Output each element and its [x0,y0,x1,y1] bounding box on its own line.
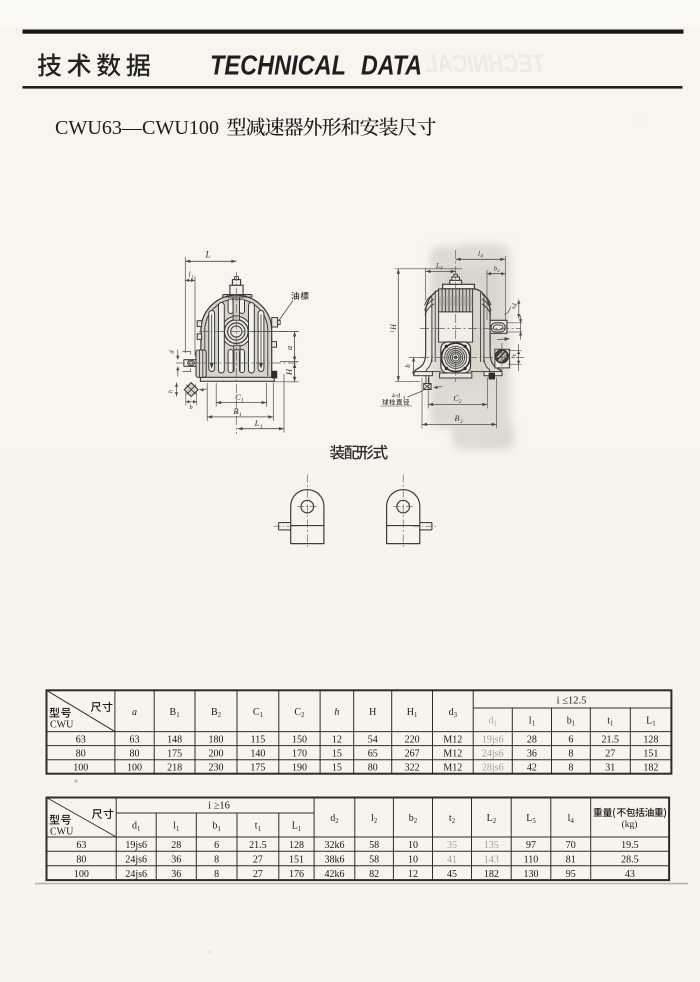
svg-text:100: 100 [73,763,88,774]
svg-text:143: 143 [484,855,499,866]
svg-text:24js6: 24js6 [125,869,147,880]
svg-text:6: 6 [568,735,573,746]
svg-text:81: 81 [566,855,576,866]
svg-text:140: 140 [250,749,265,760]
svg-text:182: 182 [484,869,499,880]
svg-text:180: 180 [209,735,224,746]
svg-text:80: 80 [76,749,86,760]
svg-text:H: H [284,368,294,376]
svg-text:42: 42 [527,763,537,774]
svg-text:190: 190 [292,763,307,774]
svg-text:35: 35 [447,840,457,851]
svg-text:58: 58 [369,855,379,866]
svg-text:24js6: 24js6 [482,749,504,760]
svg-text:CWU: CWU [50,720,74,731]
svg-text:M12: M12 [443,763,462,774]
svg-text:4-d: 4-d [392,393,401,400]
svg-text:12: 12 [332,735,342,746]
svg-text:70: 70 [566,840,576,851]
svg-text:B: B [233,406,238,416]
svg-text:80: 80 [130,749,140,760]
svg-text:21.5: 21.5 [249,840,267,851]
svg-text:a: a [132,707,137,718]
svg-text:B: B [455,414,460,423]
svg-text:28.5: 28.5 [621,855,639,866]
svg-text:80: 80 [76,855,86,866]
svg-text:19js6: 19js6 [482,735,504,746]
svg-text:a: a [285,346,294,350]
svg-text:218: 218 [167,763,182,774]
svg-text:80: 80 [368,763,378,774]
svg-text:1: 1 [241,398,244,404]
svg-text:h: h [334,707,339,718]
svg-text:2: 2 [460,419,463,425]
svg-text:i ≥16: i ≥16 [208,801,230,812]
svg-text:170: 170 [292,749,307,760]
svg-text:135: 135 [484,840,499,851]
svg-text:TECHNICAL: TECHNICAL [425,50,545,78]
svg-text:24js6: 24js6 [125,855,147,866]
svg-text:h: h [168,390,175,393]
svg-text:10: 10 [408,840,418,851]
svg-text:1: 1 [239,412,242,418]
svg-text:L: L [254,418,260,428]
svg-text:43: 43 [625,869,635,880]
svg-text:65: 65 [368,749,378,760]
svg-text:21.5: 21.5 [602,735,620,746]
svg-text:8: 8 [214,855,219,866]
svg-text:42k6: 42k6 [324,869,344,880]
svg-text:15: 15 [332,749,342,760]
svg-text:h: h [404,364,412,368]
svg-text:12: 12 [408,869,418,880]
svg-text:2: 2 [459,399,462,405]
svg-text:6: 6 [214,840,219,851]
svg-text:1: 1 [260,424,263,430]
svg-text:148: 148 [167,735,182,746]
svg-text:DATA: DATA [361,50,422,81]
svg-text:8: 8 [568,763,573,774]
svg-text:38k6: 38k6 [324,855,344,866]
svg-text:CWU63—CWU100: CWU63—CWU100 [55,117,219,139]
svg-text:97: 97 [526,840,536,851]
svg-text:36: 36 [171,855,181,866]
svg-text:CWU: CWU [50,827,74,838]
svg-text:41: 41 [447,855,457,866]
svg-text:175: 175 [250,763,265,774]
svg-text:19js6: 19js6 [125,840,147,851]
svg-text:31: 31 [605,763,615,774]
svg-text:58: 58 [369,840,379,851]
svg-text:151: 151 [643,749,658,760]
svg-text:230: 230 [209,763,224,774]
svg-text:36: 36 [527,749,537,760]
svg-text:H: H [369,707,376,718]
svg-text:45: 45 [447,869,457,880]
svg-text:128: 128 [643,735,658,746]
svg-text:200: 200 [209,749,224,760]
svg-text:10: 10 [408,855,418,866]
svg-text:63: 63 [76,840,86,851]
svg-text:1: 1 [390,330,396,333]
svg-text:151: 151 [289,855,304,866]
svg-text:82: 82 [369,869,379,880]
svg-text:i ≤12.5: i ≤12.5 [557,696,587,707]
svg-text:150: 150 [292,735,307,746]
svg-text:32k6: 32k6 [324,840,344,851]
svg-text:28js6: 28js6 [482,763,504,774]
svg-text:63: 63 [76,735,86,746]
svg-text:63: 63 [130,735,140,746]
svg-text:176: 176 [289,869,304,880]
svg-text:27: 27 [253,855,263,866]
svg-text:110: 110 [524,855,539,866]
svg-text:54: 54 [368,735,378,746]
svg-text:100: 100 [127,763,142,774]
svg-text:M12: M12 [443,749,462,760]
svg-text:130: 130 [524,869,539,880]
svg-text:27: 27 [253,869,263,880]
svg-text:115: 115 [251,735,266,746]
svg-text:8: 8 [214,869,219,880]
svg-text:267: 267 [405,749,420,760]
svg-text:28: 28 [171,840,181,851]
svg-text:128: 128 [289,840,304,851]
svg-text:100: 100 [74,869,89,880]
svg-text:322: 322 [405,763,420,774]
svg-text:1: 1 [191,274,194,280]
svg-text:TECHNICAL: TECHNICAL [210,50,346,81]
svg-text:28: 28 [527,735,537,746]
svg-text:175: 175 [167,749,182,760]
svg-text:27: 27 [605,749,615,760]
svg-text:95: 95 [566,869,576,880]
svg-text:(kg): (kg) [622,819,638,830]
svg-text:19.5: 19.5 [621,840,639,851]
svg-text:8: 8 [568,749,573,760]
svg-text:M12: M12 [443,735,462,746]
svg-text:15: 15 [332,763,342,774]
svg-text:L: L [204,250,210,260]
svg-text:220: 220 [405,735,420,746]
svg-text:182: 182 [643,763,658,774]
svg-text:36: 36 [171,869,181,880]
